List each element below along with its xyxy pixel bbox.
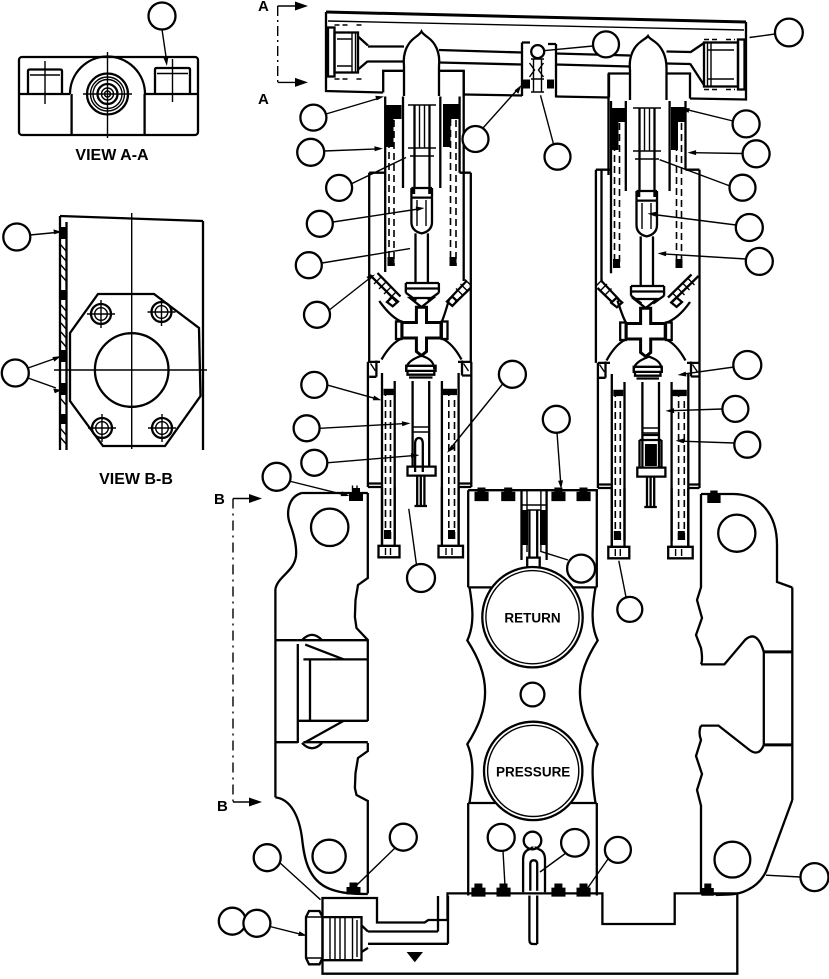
svg-text:A: A (258, 91, 269, 108)
svg-text:RETURN: RETURN (504, 611, 560, 626)
svg-text:VIEW B-B: VIEW B-B (99, 471, 173, 488)
svg-text:B: B (217, 798, 228, 815)
svg-text:VIEW A-A: VIEW A-A (75, 147, 149, 164)
svg-text:PRESSURE: PRESSURE (496, 765, 570, 780)
svg-text:A: A (258, 0, 269, 15)
svg-text:B: B (214, 491, 225, 508)
